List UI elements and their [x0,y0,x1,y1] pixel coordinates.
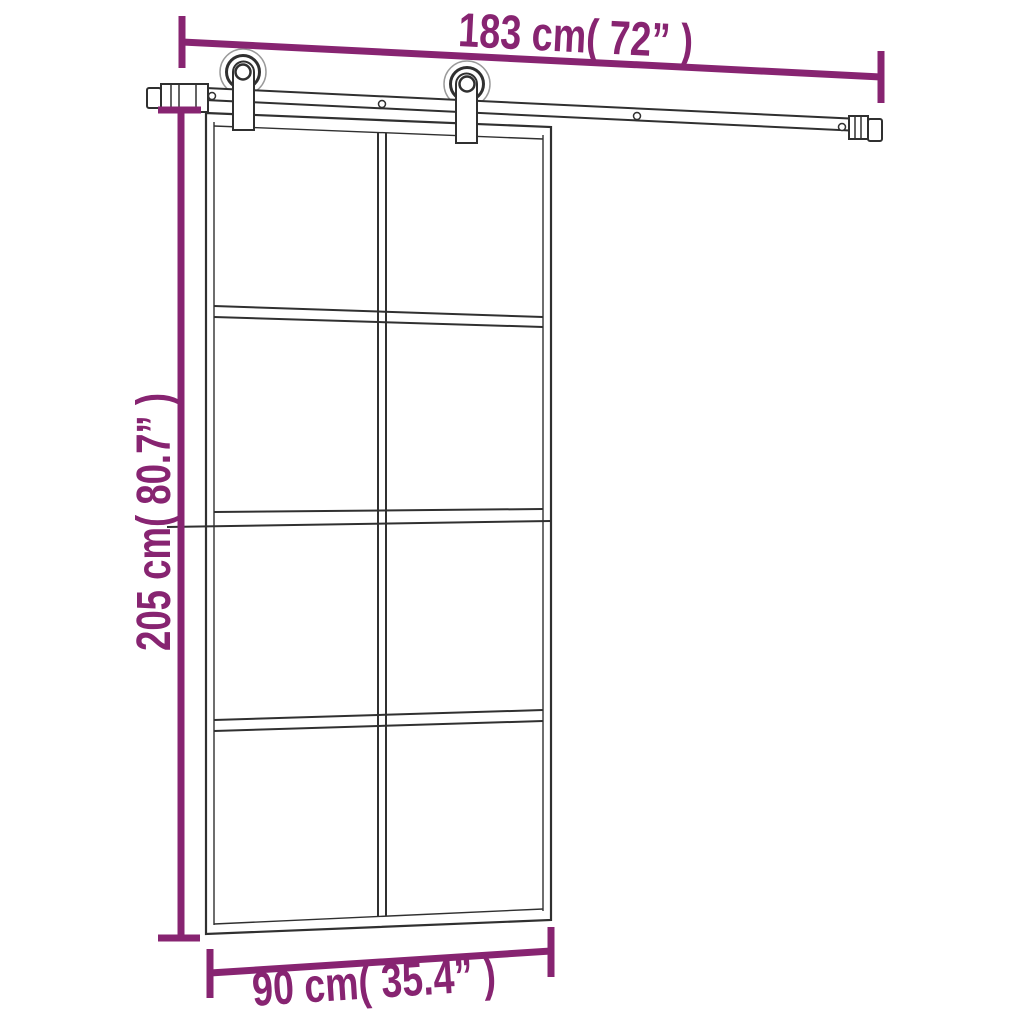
rail-screw-hole-4 [839,124,846,131]
roller-left-hub [236,65,251,80]
door-assembly [167,113,551,934]
rail-screw-hole-3 [634,113,641,120]
dimension-diagram: 183 cm( 72” ) 205 cm( 80.7” ) 90 cm( 35.… [0,0,1024,1024]
door-height-label: 205 cm( 80.7” ) [128,393,181,651]
diagram-canvas: 183 cm( 72” ) 205 cm( 80.7” ) 90 cm( 35.… [0,0,1024,1024]
rail-screw-hole-2 [379,101,386,108]
rail-right-stopper [849,116,868,139]
roller-right-hub [460,77,475,92]
rail-left-end-cap [147,88,161,108]
rail-right-end-cap [868,119,882,141]
door-width-label: 90 cm( 35.4” ) [251,948,498,1017]
rail-screw-hole-1 [209,93,216,100]
